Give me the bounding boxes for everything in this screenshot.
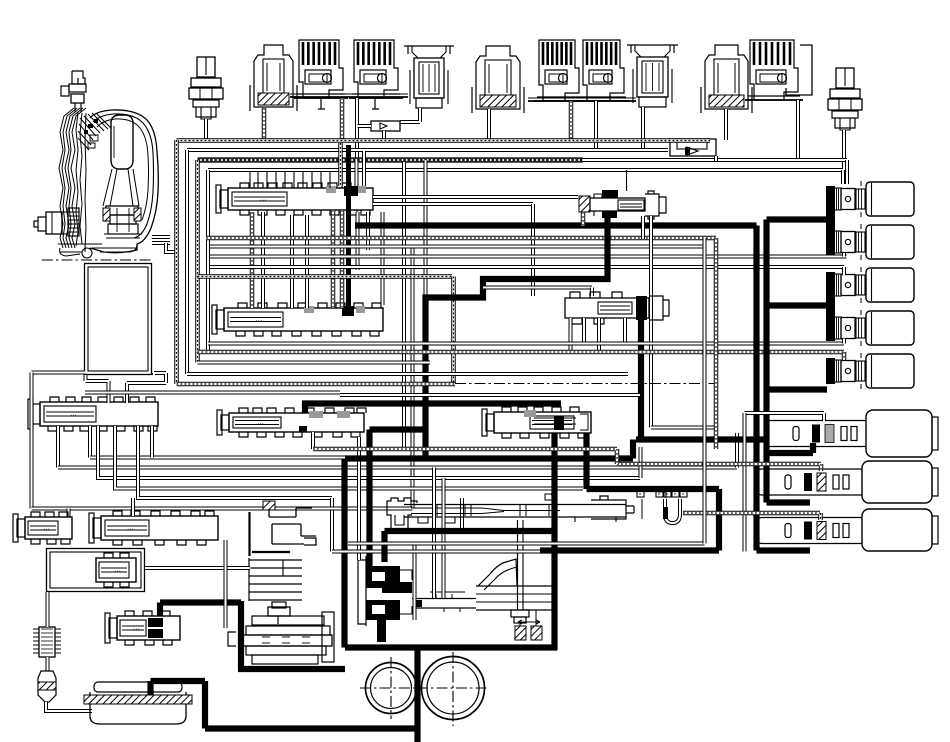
svg-text:···: ···: [133, 626, 140, 633]
svg-text:···: ···: [114, 568, 121, 575]
svg-text:···: ···: [260, 197, 267, 204]
svg-text:···: ···: [70, 412, 77, 419]
svg-text:···: ···: [257, 421, 264, 428]
svg-text:···: ···: [43, 526, 50, 533]
svg-text:···: ···: [127, 526, 134, 533]
svg-text:···: ···: [256, 318, 263, 325]
